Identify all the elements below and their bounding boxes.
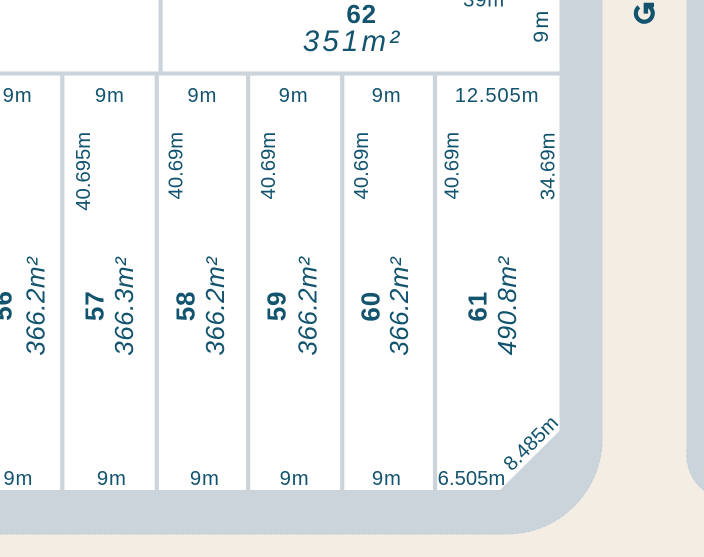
svg-text:40.69m: 40.69m [351, 132, 373, 200]
svg-text:9m: 9m [95, 85, 125, 107]
svg-text:40.695m: 40.695m [73, 132, 95, 211]
svg-text:60: 60 [356, 291, 386, 322]
svg-text:9m: 9m [3, 85, 33, 107]
svg-text:9m: 9m [279, 85, 309, 107]
svg-text:366.2m²: 366.2m² [21, 256, 51, 356]
svg-text:6.505m: 6.505m [438, 468, 506, 490]
svg-text:9m: 9m [529, 9, 553, 43]
svg-text:9m: 9m [97, 468, 127, 490]
svg-text:9m: 9m [190, 468, 220, 490]
svg-text:56: 56 [0, 290, 17, 321]
svg-text:9m: 9m [187, 85, 217, 107]
svg-text:59: 59 [262, 291, 292, 322]
svg-text:9m: 9m [372, 85, 402, 107]
svg-text:366.3m²: 366.3m² [109, 256, 139, 356]
svg-text:9m: 9m [372, 468, 402, 490]
svg-text:9m: 9m [280, 468, 310, 490]
svg-text:40.69m: 40.69m [442, 132, 464, 200]
svg-text:366.2m²: 366.2m² [200, 256, 230, 356]
svg-text:351m²: 351m² [303, 25, 403, 58]
svg-text:40.69m: 40.69m [258, 132, 280, 200]
svg-text:34.69m: 34.69m [538, 133, 560, 201]
svg-text:40.69m: 40.69m [166, 132, 188, 200]
svg-text:366.2m²: 366.2m² [384, 256, 414, 356]
svg-text:9m: 9m [3, 468, 33, 490]
svg-text:39m: 39m [463, 0, 505, 12]
svg-text:12.505m: 12.505m [455, 85, 540, 107]
svg-text:58: 58 [171, 291, 201, 322]
svg-text:61: 61 [463, 291, 493, 322]
svg-text:490.8m²: 490.8m² [492, 256, 522, 356]
svg-text:366.2m²: 366.2m² [292, 256, 322, 356]
svg-text:57: 57 [80, 291, 110, 322]
